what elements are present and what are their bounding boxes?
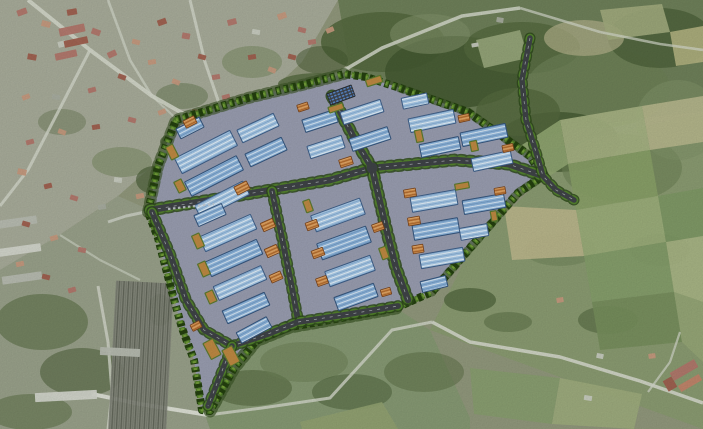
photo-grain [0, 0, 703, 429]
aerial-map-canvas [0, 0, 703, 429]
satellite-masterplan-image [0, 0, 703, 429]
